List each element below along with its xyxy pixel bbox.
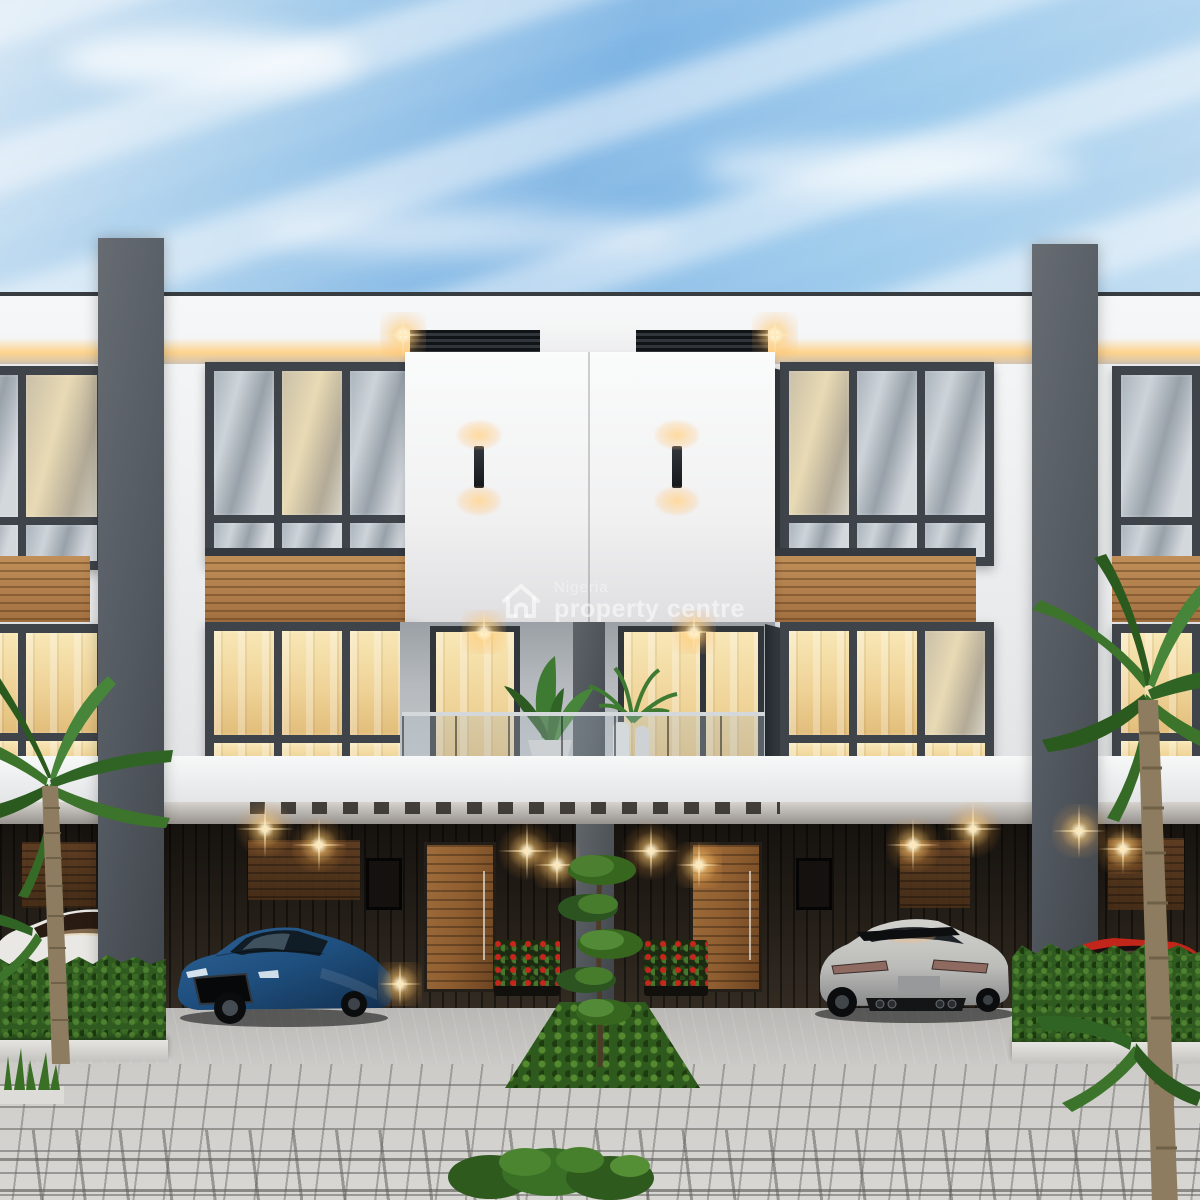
house-outline-icon <box>498 579 544 623</box>
cloud <box>700 140 1080 194</box>
palm-tree-right <box>1002 518 1200 1200</box>
window-sill <box>205 548 415 556</box>
window-pane <box>282 631 342 735</box>
bay-window-return <box>765 624 781 764</box>
window-pane <box>350 371 410 515</box>
window-sill <box>765 548 976 556</box>
watermark-line2: property centre <box>554 596 745 622</box>
window-pane <box>789 631 849 735</box>
wood-cladding-left <box>205 556 415 622</box>
window-pane <box>0 375 18 517</box>
foreground-bush <box>430 1132 680 1200</box>
louver-vent-left <box>410 330 540 354</box>
window-upper-left-unit <box>205 362 419 566</box>
soffit-louvers <box>250 802 780 814</box>
window-pane <box>1121 375 1192 517</box>
louver-vent-right <box>636 330 768 354</box>
central-block-tab <box>538 320 642 356</box>
window-pane <box>26 375 97 517</box>
cloud <box>60 30 360 90</box>
topiary-tree <box>530 842 670 1072</box>
watermark: Nigeria property centre <box>498 574 758 628</box>
window-pane <box>857 631 917 735</box>
blue-sedan <box>172 908 400 1030</box>
window-pane <box>214 631 274 735</box>
window-upper-right-unit <box>780 362 994 566</box>
cloud <box>260 210 680 256</box>
license-plate <box>898 976 940 993</box>
watermark-text: Nigeria property centre <box>554 580 745 622</box>
window-pane <box>857 371 917 515</box>
window-pane <box>214 371 274 515</box>
wood-cladding-right <box>765 556 976 622</box>
wood-cladding-far-left <box>0 556 90 622</box>
wall-sconce-light <box>672 446 682 488</box>
palm-tree-left <box>0 628 198 1068</box>
window-pane <box>925 631 985 735</box>
window-upper-far-left <box>0 366 106 570</box>
entrance-door-left-unit <box>424 842 496 992</box>
silver-fastback <box>806 902 1024 1026</box>
window-pane <box>789 371 849 515</box>
window-pane <box>282 371 342 515</box>
architectural-rendering: Nigeria property centre <box>0 0 1200 1200</box>
window-pane <box>925 371 985 515</box>
entry-side-window <box>366 858 402 910</box>
garage-back-panel <box>900 840 970 908</box>
watermark-line1: Nigeria <box>554 580 745 596</box>
garage-back-panel <box>248 840 360 900</box>
corner-grass <box>0 1038 74 1118</box>
wall-sconce-light <box>474 446 484 488</box>
